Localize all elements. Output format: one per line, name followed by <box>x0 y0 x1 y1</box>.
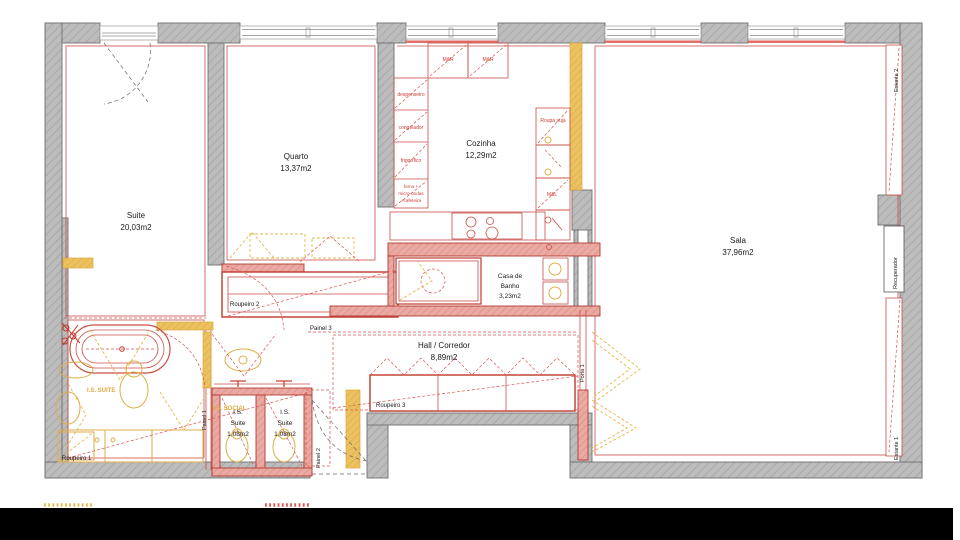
label-isr-2: Suite <box>278 420 293 427</box>
label-frigorifico: frigorífico <box>401 158 422 164</box>
suite-balcony-door <box>100 26 158 104</box>
label-roupa-suja: Roupa suja <box>540 118 566 124</box>
label-is-social-tag: I.S. SOCIAL <box>213 406 247 412</box>
label-congelador: congelador <box>399 125 424 131</box>
footer-bar <box>0 508 953 540</box>
window-sala-1 <box>605 26 701 43</box>
label-quarto: Quarto <box>284 152 309 161</box>
label-banho-1: Casa de <box>498 273 523 280</box>
wardrobe-roupeiro1 <box>58 392 310 462</box>
label-isl-area: 1,08m2 <box>227 431 249 438</box>
label-painel3: Painel 3 <box>310 326 332 332</box>
label-hall-area: 8,89m2 <box>431 353 458 362</box>
label-roupeiro1: Roupeiro 1 <box>62 456 92 462</box>
window-sala-2 <box>748 26 845 43</box>
label-painel2: Painel 2 <box>316 448 322 468</box>
label-despenseiro: despenseiro <box>397 92 424 98</box>
floor-plan-page: Suite 20,03m2 Quarto 13,37m2 Cozinha 12,… <box>0 0 960 540</box>
label-sala: Sala <box>730 236 747 245</box>
label-mr2: M&R <box>482 57 494 63</box>
label-porta1: Porta 1 <box>580 364 586 382</box>
label-forno-1: forno + <box>404 184 419 189</box>
label-recuperador: Recuperador <box>893 257 899 289</box>
label-estante1: Estante 1 <box>894 437 900 460</box>
label-forno-3: +cafeteira <box>401 198 422 203</box>
label-painel1: Painel 1 <box>202 410 208 430</box>
label-roupeiro2: Roupeiro 2 <box>230 302 260 308</box>
label-quarto-area: 13,37m2 <box>280 164 312 173</box>
label-suite-area: 20,03m2 <box>120 223 152 232</box>
label-roupeiro3: Roupeiro 3 <box>376 403 406 409</box>
label-isr-area: 1,08m2 <box>274 431 296 438</box>
label-isl-2: Suite <box>231 420 246 427</box>
window-cozinha <box>406 26 498 43</box>
label-sala-area: 37,96m2 <box>722 248 754 257</box>
label-banho-area: 3,23m2 <box>499 293 521 300</box>
label-mel: M&L <box>547 192 558 198</box>
kitchen-labels: M&R M&R despenseiro congelador frigorífi… <box>397 57 565 203</box>
bathroom-fittings <box>396 258 481 304</box>
floor-plan-drawing: Suite 20,03m2 Quarto 13,37m2 Cozinha 12,… <box>0 0 960 540</box>
label-cozinha: Cozinha <box>466 139 496 148</box>
label-estante2: Estante 2 <box>894 69 900 92</box>
label-isr-1: I.S. <box>280 409 290 416</box>
label-hall: Hall / Corredor <box>418 341 470 350</box>
label-forno-2: micro-ondas <box>398 191 424 196</box>
label-suite: Suite <box>127 211 146 220</box>
window-quarto <box>240 26 377 39</box>
label-is-suite-tag: I.S. SUITE <box>87 388 115 394</box>
label-banho-2: Banho <box>501 283 520 290</box>
label-cozinha-area: 12,29m2 <box>465 151 497 160</box>
label-mr1: M&R <box>442 57 454 63</box>
